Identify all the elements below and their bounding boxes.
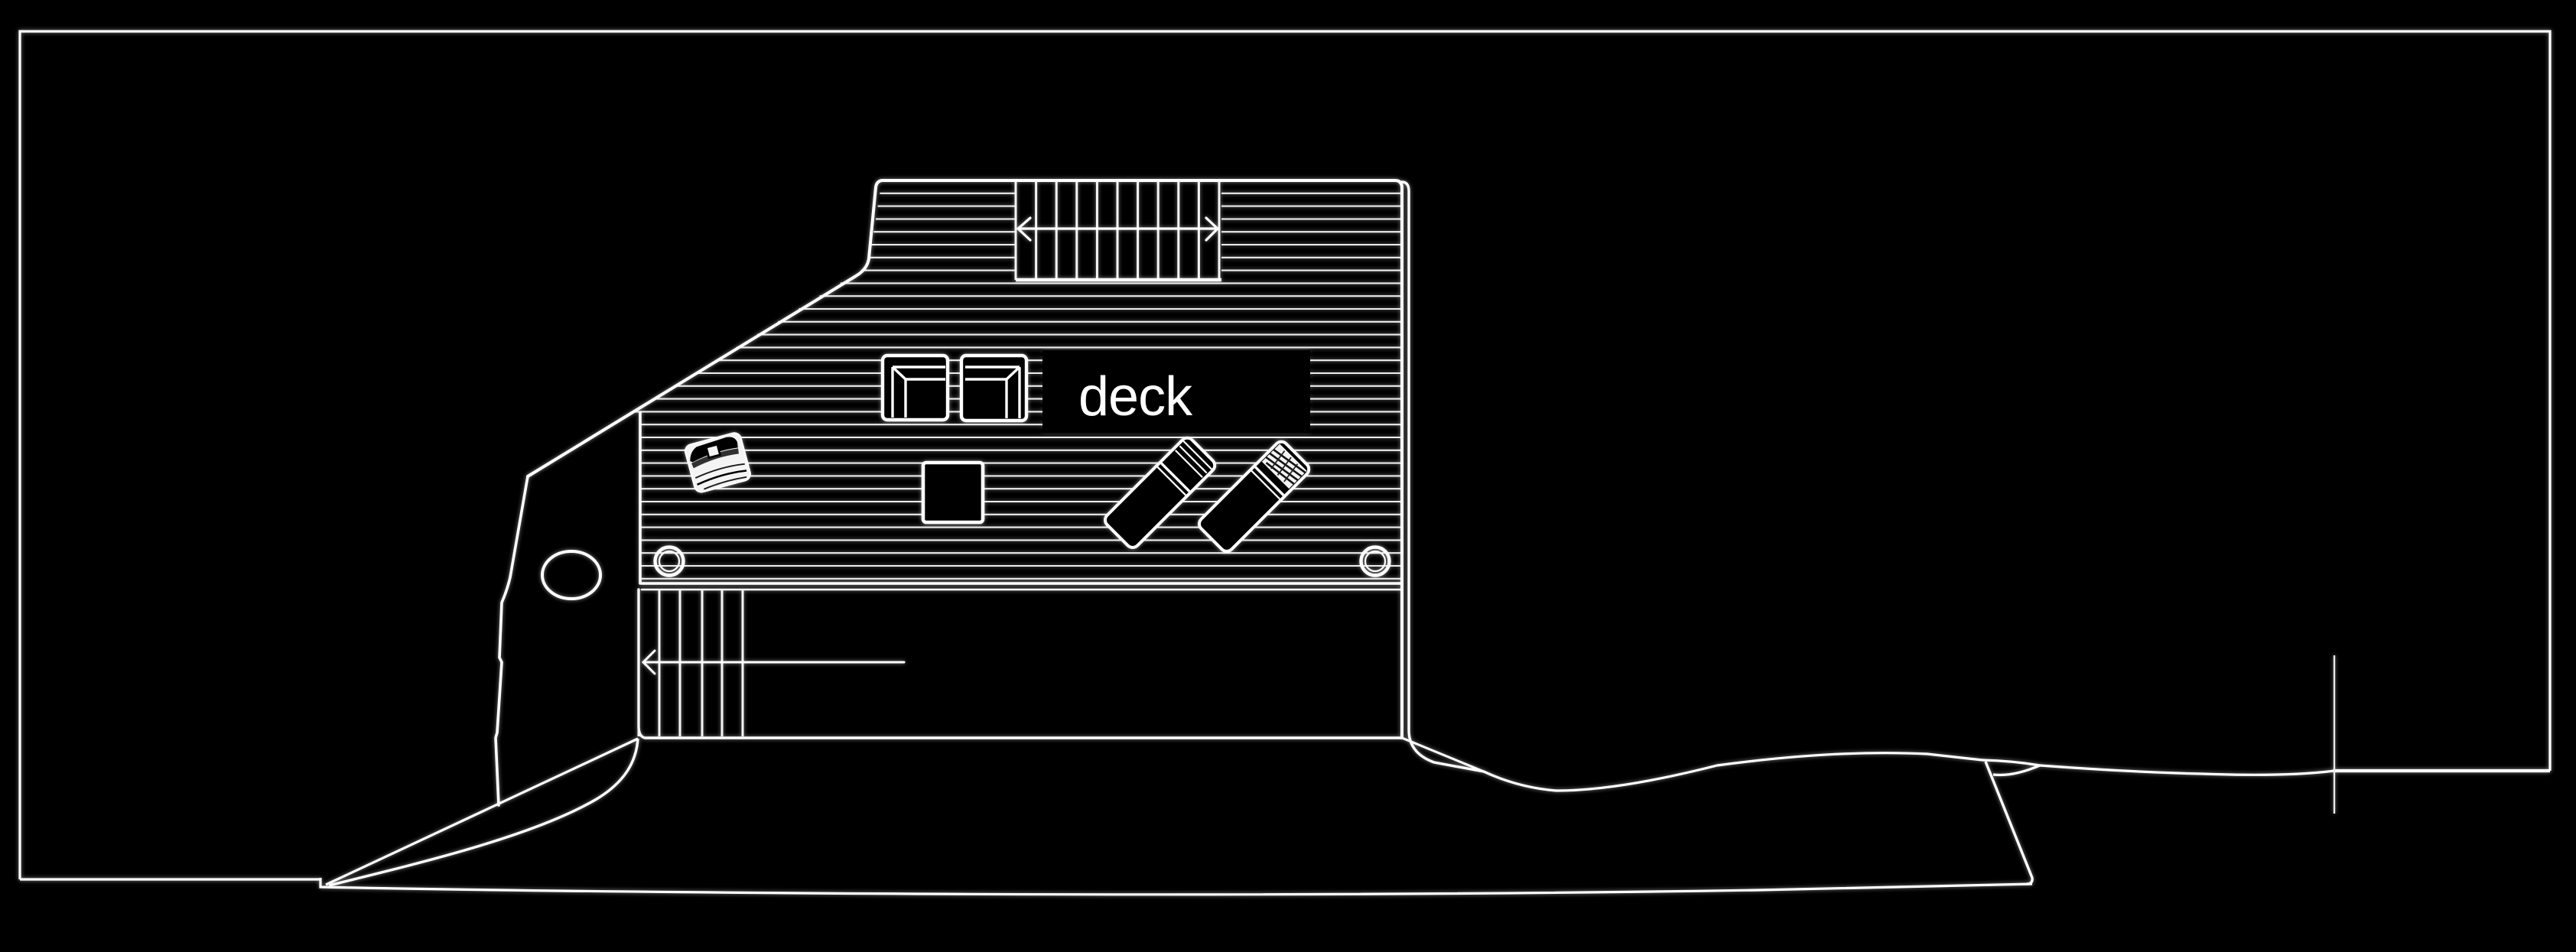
svg-text:deck: deck xyxy=(1078,366,1193,427)
